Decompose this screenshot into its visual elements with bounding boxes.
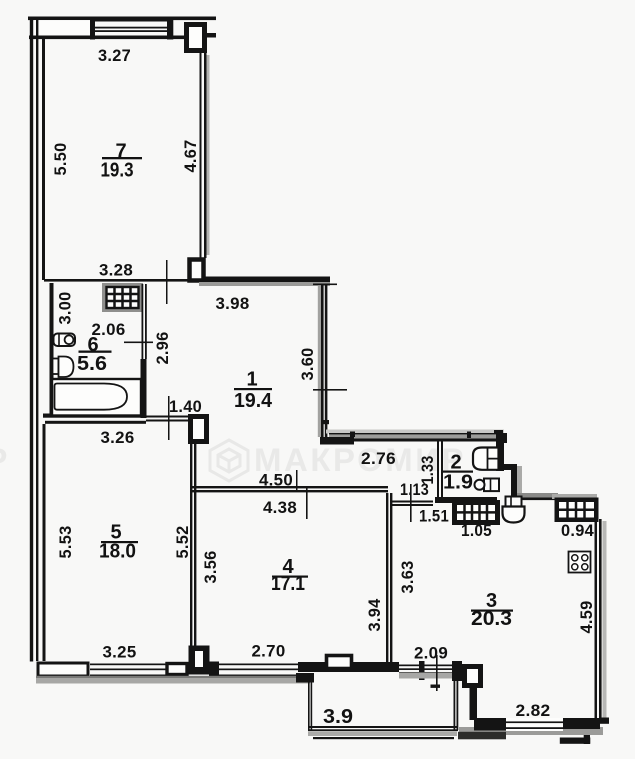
svg-text:20.3: 20.3 [471,608,512,630]
svg-text:2.76: 2.76 [361,449,396,468]
svg-text:3.56: 3.56 [201,551,220,584]
svg-text:4.59: 4.59 [577,601,596,634]
svg-text:3.26: 3.26 [101,428,135,447]
svg-text:2: 2 [450,452,461,474]
svg-text:3.60: 3.60 [298,348,317,381]
svg-text:4.50: 4.50 [259,471,293,490]
svg-text:5.52: 5.52 [173,526,192,559]
svg-text:1.05: 1.05 [461,521,492,540]
svg-text:4.38: 4.38 [263,498,297,517]
svg-text:3.00: 3.00 [56,292,75,325]
svg-text:1.9: 1.9 [443,472,473,494]
svg-text:3.27: 3.27 [98,46,131,65]
svg-text:3.94: 3.94 [365,598,384,631]
svg-text:5.6: 5.6 [77,353,107,375]
svg-text:18.0: 18.0 [99,541,136,563]
svg-text:2.70: 2.70 [252,642,286,661]
svg-text:2.82: 2.82 [516,701,551,720]
svg-text:5.50: 5.50 [51,143,70,176]
svg-text:1.51: 1.51 [419,507,449,526]
svg-text:5.53: 5.53 [56,526,75,559]
svg-text:2.09: 2.09 [414,644,448,663]
svg-text:1.40: 1.40 [169,397,202,416]
svg-text:1.13: 1.13 [400,480,429,499]
svg-text:3.98: 3.98 [216,294,250,313]
svg-text:1: 1 [246,369,257,391]
svg-text:3.63: 3.63 [398,561,417,594]
svg-text:17.1: 17.1 [271,573,305,595]
svg-text:3.25: 3.25 [103,643,137,662]
svg-text:4.67: 4.67 [181,140,200,173]
svg-text:19.4: 19.4 [234,390,273,412]
svg-text:2.96: 2.96 [153,332,172,365]
svg-text:0.94: 0.94 [561,521,594,540]
svg-text:3.9: 3.9 [323,706,353,728]
svg-text:19.3: 19.3 [101,160,134,182]
svg-text:Р: Р [0,442,10,478]
svg-text:3.28: 3.28 [99,261,133,280]
